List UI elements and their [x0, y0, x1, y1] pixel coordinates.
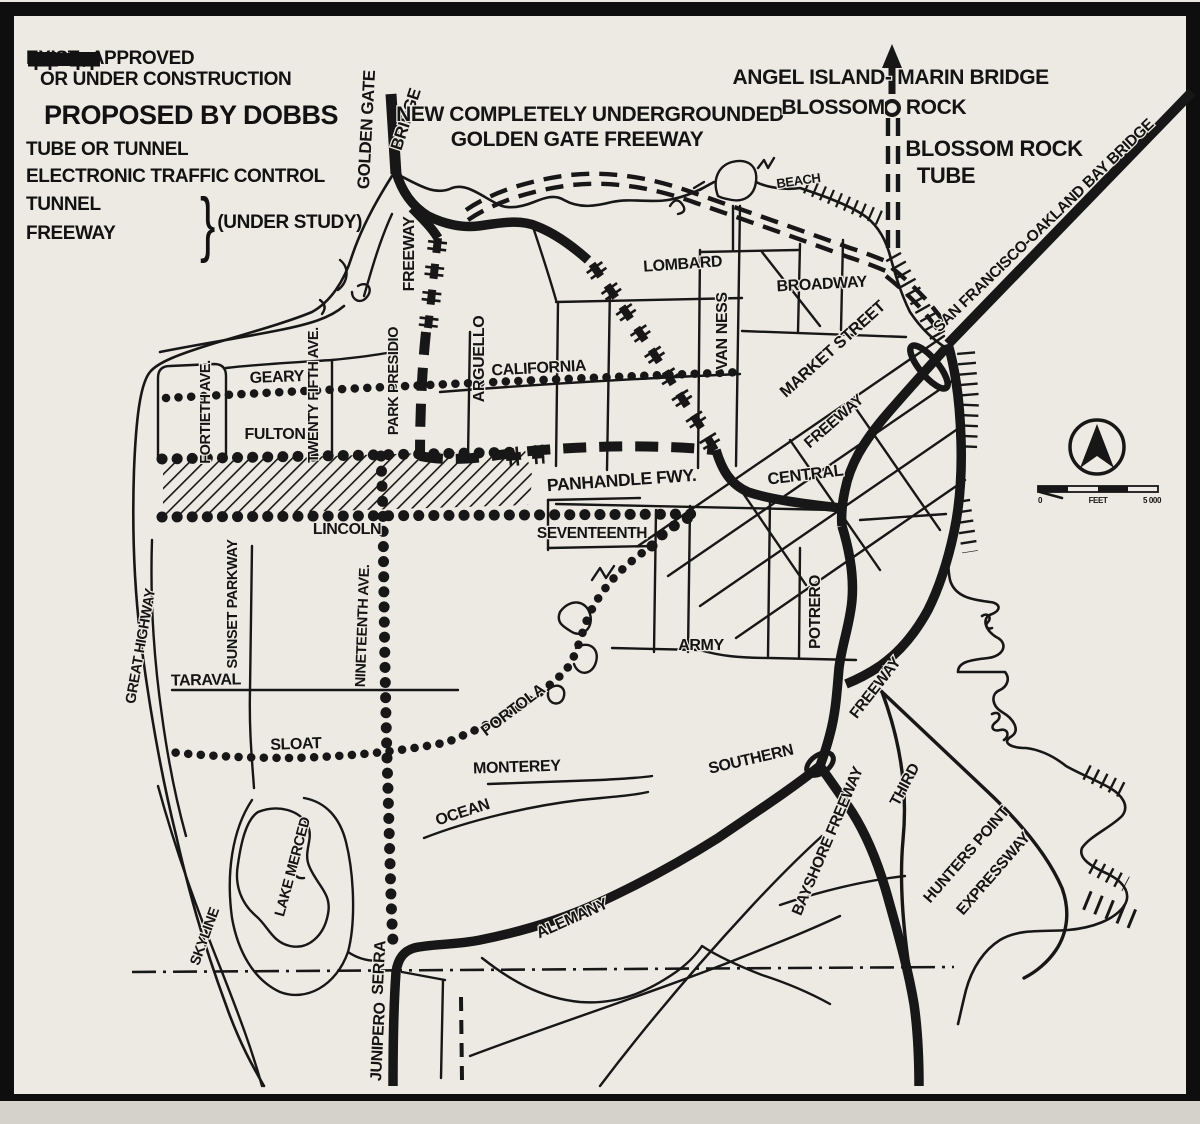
- map-label-van-ness: VAN NESS: [714, 292, 731, 370]
- map-label-potrero: POTRERO: [807, 575, 824, 649]
- map-label-golden-gate-freeway: GOLDEN GATE FREEWAY: [451, 128, 704, 151]
- map-label-seventeenth: SEVENTEENTH: [537, 525, 647, 542]
- map-label-arguello: ARGUELLO: [471, 316, 488, 403]
- legend-row-tube: TUBE OR TUNNEL: [26, 139, 398, 160]
- map-label-sunset-parkway: SUNSET PARKWAY: [225, 539, 241, 669]
- map-label-fortieth-ave-: FORTIETH AVE.: [198, 360, 214, 464]
- legend-freeway-label: FREEWAY: [26, 223, 115, 244]
- map-label-tube: TUBE: [917, 163, 975, 188]
- map-label-sloat: SLOAT: [270, 735, 322, 754]
- map-label-monterey: MONTEREY: [473, 757, 562, 777]
- legend-etc-label: ELECTRONIC TRAFFIC CONTROL: [26, 166, 325, 187]
- map-label-park-presidio: PARK PRESIDIO: [386, 327, 402, 435]
- map-label-twenty-fifth-ave-: TWENTY FIFTH AVE.: [306, 327, 322, 463]
- legend-under-study-label: (UNDER STUDY): [217, 212, 362, 234]
- legend-under-study-group: TUNNEL FREEWAY } (UNDER STUDY): [26, 193, 398, 253]
- legend-row-tunnel: TUNNEL: [26, 194, 206, 215]
- photo-margin: [0, 1101, 1200, 1124]
- map-label-blossom-rock: BLOSSOM ROCK: [905, 136, 1083, 161]
- map-label-marin-bridge: MARIN BRIDGE: [897, 66, 1049, 89]
- legend: EXIST., APPROVED OR UNDER CONSTRUCTION P…: [26, 48, 398, 253]
- map-label-fulton: FULTON: [245, 426, 306, 443]
- map-label-freeway: FREEWAY: [401, 216, 418, 292]
- map-label-angel-island-: ANGEL ISLAND-: [733, 66, 892, 89]
- legend-row-freeway: FREEWAY: [26, 223, 206, 244]
- legend-tunnel-label: TUNNEL: [26, 194, 101, 215]
- legend-existing-line2: OR UNDER CONSTRUCTION: [40, 69, 291, 90]
- map-label-blossom: BLOSSOM: [781, 96, 884, 119]
- map-label-serra: SERRA: [370, 940, 390, 996]
- map-label-geary: GEARY: [249, 368, 305, 387]
- legend-tube-label: TUBE OR TUNNEL: [26, 139, 188, 160]
- screenshot-root: 0 FEET 5 000 GOLDEN GATEBRIDGENEW COMPLE…: [0, 0, 1200, 1124]
- map-label-new-completely-undergrounded: NEW COMPLETELY UNDERGROUNDED: [396, 103, 784, 126]
- map-label-army: ARMY: [678, 637, 724, 654]
- map-label-taraval: TARAVAL: [171, 671, 242, 689]
- legend-proposed-header: PROPOSED BY DOBBS: [44, 100, 398, 131]
- map-label-rock: ROCK: [906, 96, 966, 119]
- map-label-lincoln: LINCOLN: [313, 521, 381, 538]
- scale-unit: FEET: [1089, 496, 1108, 505]
- scale-end: 5 000: [1143, 496, 1162, 505]
- legend-brace: }: [200, 177, 215, 270]
- dashed-line-icon: [26, 50, 102, 64]
